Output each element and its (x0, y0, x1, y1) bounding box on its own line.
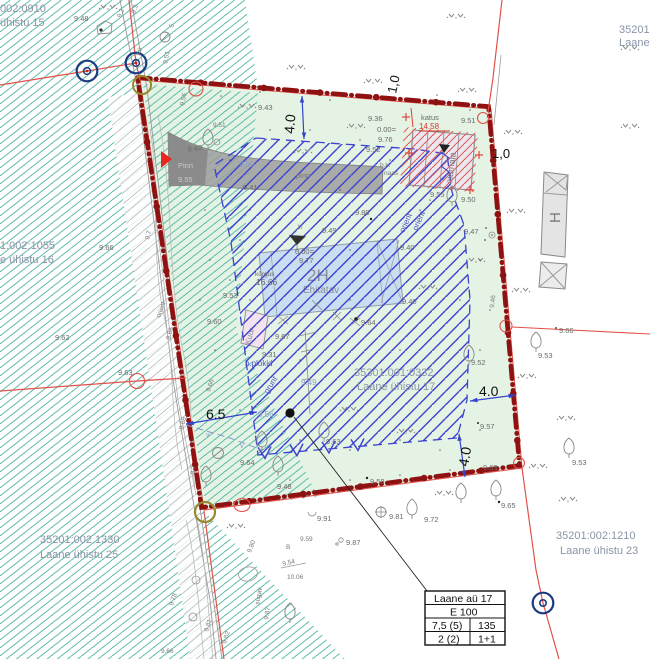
svg-text:0.00=: 0.00= (377, 125, 397, 134)
svg-text:9.41: 9.41 (243, 183, 258, 192)
svg-text:9,47: 9,47 (464, 227, 479, 236)
svg-text:H: H (547, 212, 564, 223)
svg-text:Laane ühistu 23: Laane ühistu 23 (560, 545, 638, 557)
svg-text:9.50: 9.50 (461, 195, 476, 204)
svg-text:9.56: 9.56 (258, 410, 274, 419)
svg-text:16.66: 16.66 (256, 277, 278, 287)
svg-text:pinn: pinn (296, 171, 310, 180)
svg-text:e ühistu 16: e ühistu 16 (0, 254, 54, 266)
svg-text:1i: 1i (297, 224, 302, 231)
svg-text:9.53: 9.53 (572, 458, 587, 467)
svg-text:naas: naas (384, 170, 399, 177)
svg-text:9.66: 9.66 (99, 243, 114, 252)
svg-text:4.0: 4.0 (479, 383, 499, 399)
svg-text:9.72: 9.72 (424, 515, 439, 524)
svg-text:9.52: 9.52 (366, 145, 381, 154)
svg-text:9.63: 9.63 (326, 437, 341, 446)
svg-text:9.40: 9.40 (400, 243, 415, 252)
svg-text:9.58: 9.58 (370, 477, 385, 486)
svg-text:35201:002 1330: 35201:002 1330 (40, 534, 120, 546)
svg-text:1+1: 1+1 (478, 634, 496, 646)
svg-text:9.87: 9.87 (346, 538, 361, 547)
svg-text:4.0: 4.0 (455, 445, 474, 467)
svg-text:ühistu 15: ühistu 15 (0, 17, 45, 29)
svg-text:7,5 (5): 7,5 (5) (432, 620, 462, 632)
svg-text:9.80: 9.80 (355, 208, 370, 217)
svg-text:E 100: E 100 (450, 607, 478, 619)
svg-text:9.60: 9.60 (207, 317, 222, 326)
svg-text:b.plokid: b.plokid (245, 359, 273, 368)
svg-text:9.48: 9.48 (277, 482, 292, 491)
svg-text:1:002:1055: 1:002:1055 (0, 240, 55, 252)
svg-text:9.77: 9.77 (299, 256, 314, 265)
svg-text:9.51: 9.51 (461, 116, 476, 125)
svg-text:9.43: 9.43 (258, 103, 273, 112)
svg-text:6.5: 6.5 (206, 406, 226, 422)
svg-text:9.48: 9.48 (74, 14, 89, 23)
svg-text:4.0: 4.0 (281, 113, 298, 134)
svg-text:9.53: 9.53 (223, 291, 238, 300)
svg-text:Laane ühistu 17: Laane ühistu 17 (357, 381, 435, 393)
svg-text:9.52: 9.52 (471, 358, 486, 367)
svg-text:9.62: 9.62 (55, 333, 70, 342)
svg-text:9.67: 9.67 (275, 332, 290, 341)
svg-text:Pinn: Pinn (178, 161, 193, 170)
svg-text:9.64: 9.64 (361, 318, 376, 327)
svg-text:135: 135 (478, 620, 496, 632)
svg-text:9.51: 9.51 (213, 122, 226, 129)
svg-text:9.63: 9.63 (118, 368, 133, 377)
svg-text:9.31: 9.31 (262, 350, 277, 359)
svg-text:10.06: 10.06 (287, 574, 304, 581)
svg-text:9.91: 9.91 (317, 514, 332, 523)
svg-text:0.00=: 0.00= (295, 247, 315, 256)
svg-text:9.66: 9.66 (161, 648, 174, 655)
svg-text:9.64: 9.64 (240, 458, 255, 467)
svg-text:9.66: 9.66 (559, 326, 574, 335)
svg-text:Laane: Laane (619, 37, 650, 49)
svg-text:9.36: 9.36 (368, 114, 383, 123)
svg-text:9.49: 9.49 (301, 378, 317, 387)
svg-text:14.58: 14.58 (419, 122, 440, 131)
svg-text:9.63: 9.63 (483, 463, 498, 472)
svg-text:b.k.: b.k. (380, 162, 391, 169)
svg-text:9.40: 9.40 (402, 297, 417, 306)
svg-text:9.65: 9.65 (501, 501, 516, 510)
svg-text:9.81: 9.81 (389, 512, 404, 521)
svg-text:B: B (286, 544, 290, 551)
svg-text:2 (2): 2 (2) (438, 634, 460, 646)
svg-text:9.49: 9.49 (322, 226, 337, 235)
svg-text:35201:002:1210: 35201:002:1210 (556, 530, 636, 542)
svg-text:9.46: 9.46 (489, 295, 497, 309)
svg-text:9.55: 9.55 (178, 175, 193, 184)
svg-text:v: v (240, 443, 244, 450)
svg-text:Laane aü 17: Laane aü 17 (434, 593, 493, 605)
svg-text:9.57: 9.57 (480, 422, 495, 431)
svg-text:35301:001:0332: 35301:001:0332 (354, 367, 434, 379)
svg-text:9.53: 9.53 (538, 351, 553, 360)
svg-text:v: v (206, 432, 210, 439)
svg-text:9.59: 9.59 (300, 536, 313, 543)
svg-text:katus: katus (421, 113, 439, 122)
svg-text:9.50: 9.50 (239, 160, 255, 169)
svg-text:9.55: 9.55 (430, 190, 445, 199)
svg-text:Laane ühistu 25: Laane ühistu 25 (40, 549, 118, 561)
svg-text:35201: 35201 (619, 24, 650, 36)
svg-text:9.76: 9.76 (378, 135, 393, 144)
svg-text:002:0910: 002:0910 (0, 3, 46, 15)
svg-text:1,0: 1,0 (492, 146, 510, 161)
